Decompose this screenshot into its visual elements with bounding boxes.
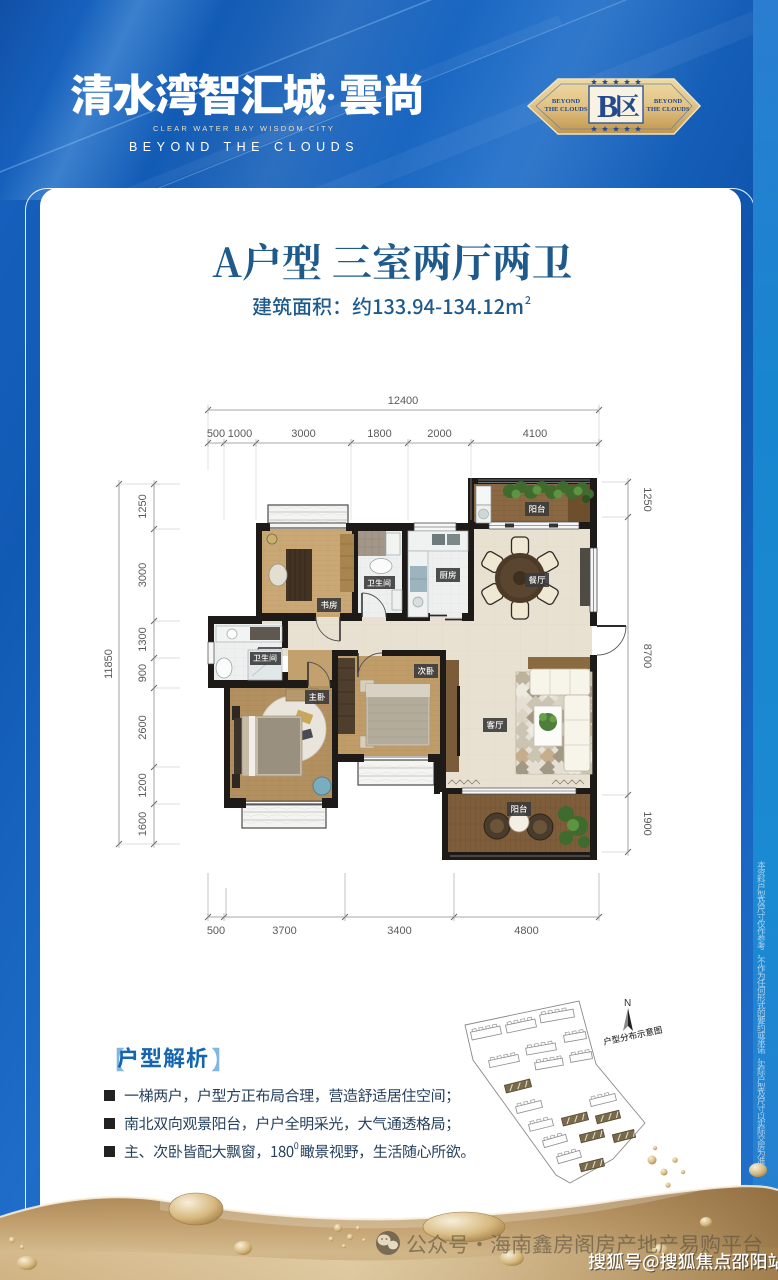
svg-text:500: 500 [207,428,225,440]
svg-text:4800: 4800 [514,925,538,937]
svg-text:3000: 3000 [137,563,149,587]
svg-text:1800: 1800 [367,428,391,440]
svg-text:1300: 1300 [137,627,149,651]
svg-text:B: B [597,88,618,124]
svg-text:BEYOND THE CLOUDS: BEYOND THE CLOUDS [129,140,359,154]
svg-text:1600: 1600 [137,812,149,836]
svg-text:N: N [624,998,631,1009]
svg-text:THE CLOUDS: THE CLOUDS [646,106,689,113]
svg-text:3000: 3000 [291,428,315,440]
svg-text:1250: 1250 [641,487,653,511]
svg-text:4100: 4100 [523,428,547,440]
svg-text:3400: 3400 [387,925,411,937]
svg-text:1000: 1000 [228,428,252,440]
svg-text:BEYOND: BEYOND [552,98,580,105]
svg-text:1250: 1250 [137,494,149,518]
svg-text:BEYOND: BEYOND [654,98,682,105]
svg-text:3700: 3700 [272,925,296,937]
svg-text:11850: 11850 [103,649,115,679]
svg-text:900: 900 [137,664,149,682]
svg-text:1200: 1200 [137,773,149,797]
svg-text:12400: 12400 [388,395,419,407]
svg-text:THE CLOUDS: THE CLOUDS [544,106,587,113]
svg-text:2000: 2000 [427,428,451,440]
svg-text:8700: 8700 [641,644,653,668]
svg-text:2600: 2600 [137,715,149,739]
svg-text:CLEAR WATER BAY WISDOM CITY: CLEAR WATER BAY WISDOM CITY [153,124,335,133]
svg-text:1900: 1900 [641,811,653,835]
svg-text:500: 500 [207,925,225,937]
